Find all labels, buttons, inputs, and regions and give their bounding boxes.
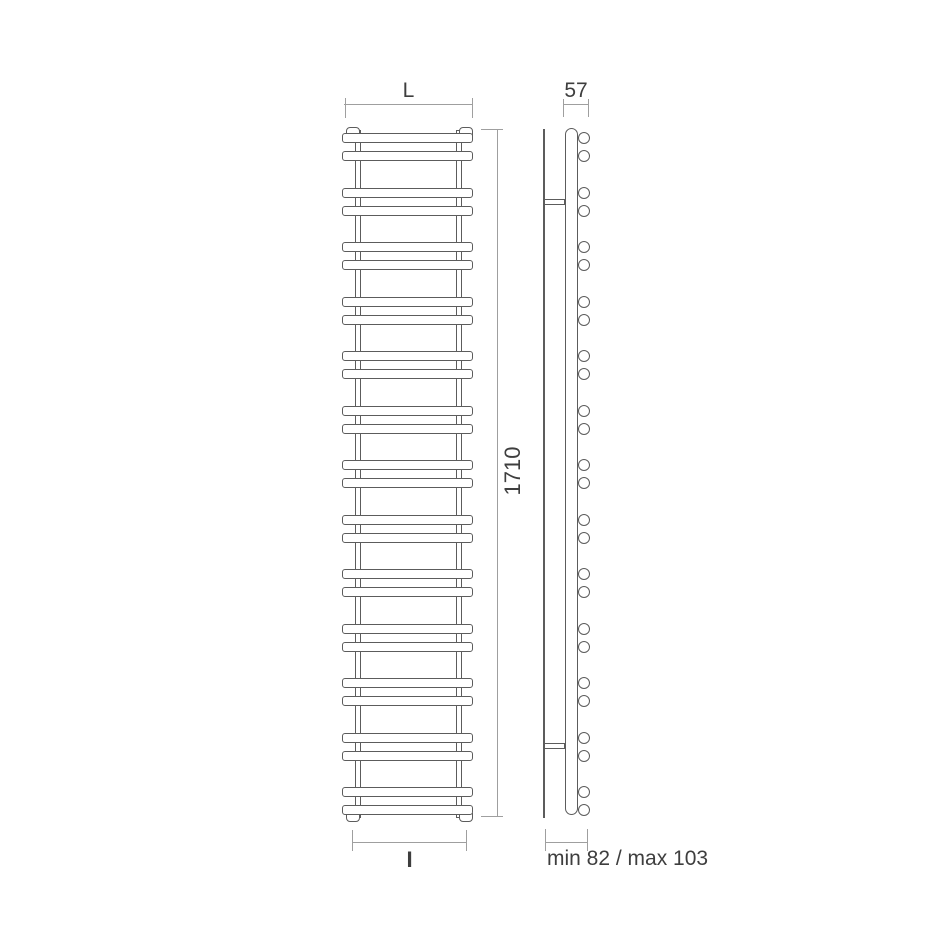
wall-clearance-dim-line xyxy=(545,842,588,843)
height-dim-label: 1710 xyxy=(502,447,524,496)
width-dim-line xyxy=(344,104,473,105)
bar-end-circle xyxy=(578,586,590,598)
side-collector-tube xyxy=(565,128,578,815)
bar-end-circle xyxy=(578,623,590,635)
bar-end-circle xyxy=(578,296,590,308)
bar-end-circle xyxy=(578,405,590,417)
width-dim-label: L xyxy=(344,80,473,101)
bar-end-circle xyxy=(578,259,590,271)
bar-end-circle xyxy=(578,514,590,526)
bar-end-circle xyxy=(578,786,590,798)
bar-end-circle xyxy=(578,732,590,744)
bar-end-circle xyxy=(578,350,590,362)
bar-end-circle xyxy=(578,477,590,489)
bar-end-circle xyxy=(578,205,590,217)
bar-end-circle xyxy=(578,459,590,471)
height-dim-line xyxy=(497,129,498,817)
bar-end-circle xyxy=(578,804,590,816)
height-dim-tick-top xyxy=(481,129,503,130)
interaxis-dim-line xyxy=(352,842,467,843)
bar-end-circle xyxy=(578,314,590,326)
bar-end-circle xyxy=(578,750,590,762)
side-elevation-view xyxy=(0,0,950,950)
wall-bracket-top xyxy=(544,199,565,205)
height-dim-tick-bottom xyxy=(481,816,503,817)
bar-end-circle xyxy=(578,241,590,253)
bar-end-circle xyxy=(578,641,590,653)
wall-bracket-bottom xyxy=(544,743,565,749)
bar-end-circle xyxy=(578,368,590,380)
bar-end-circle xyxy=(578,187,590,199)
width-dim-tick-left xyxy=(345,98,346,118)
bar-end-circle xyxy=(578,423,590,435)
depth-dim-label: 57 xyxy=(551,80,601,101)
bar-end-circle xyxy=(578,150,590,162)
bar-end-circle xyxy=(578,132,590,144)
wall-clearance-dim-tick-left xyxy=(545,829,546,851)
width-dim-tick-right xyxy=(472,98,473,118)
depth-dim-tick-right xyxy=(588,99,589,117)
interaxis-dim-tick-left xyxy=(352,830,353,851)
radiator-technical-drawing: L 57 1710 I min 82 / max 103 xyxy=(0,0,950,950)
bar-end-circle xyxy=(578,677,590,689)
bar-end-circle xyxy=(578,568,590,580)
interaxis-dim-label: I xyxy=(352,849,467,871)
wall-mount-line xyxy=(543,129,545,818)
depth-dim-line xyxy=(563,104,589,105)
bar-end-circle xyxy=(578,532,590,544)
interaxis-dim-tick-right xyxy=(466,830,467,851)
bar-end-circle xyxy=(578,695,590,707)
wall-clearance-dim-label: min 82 / max 103 xyxy=(547,848,708,869)
